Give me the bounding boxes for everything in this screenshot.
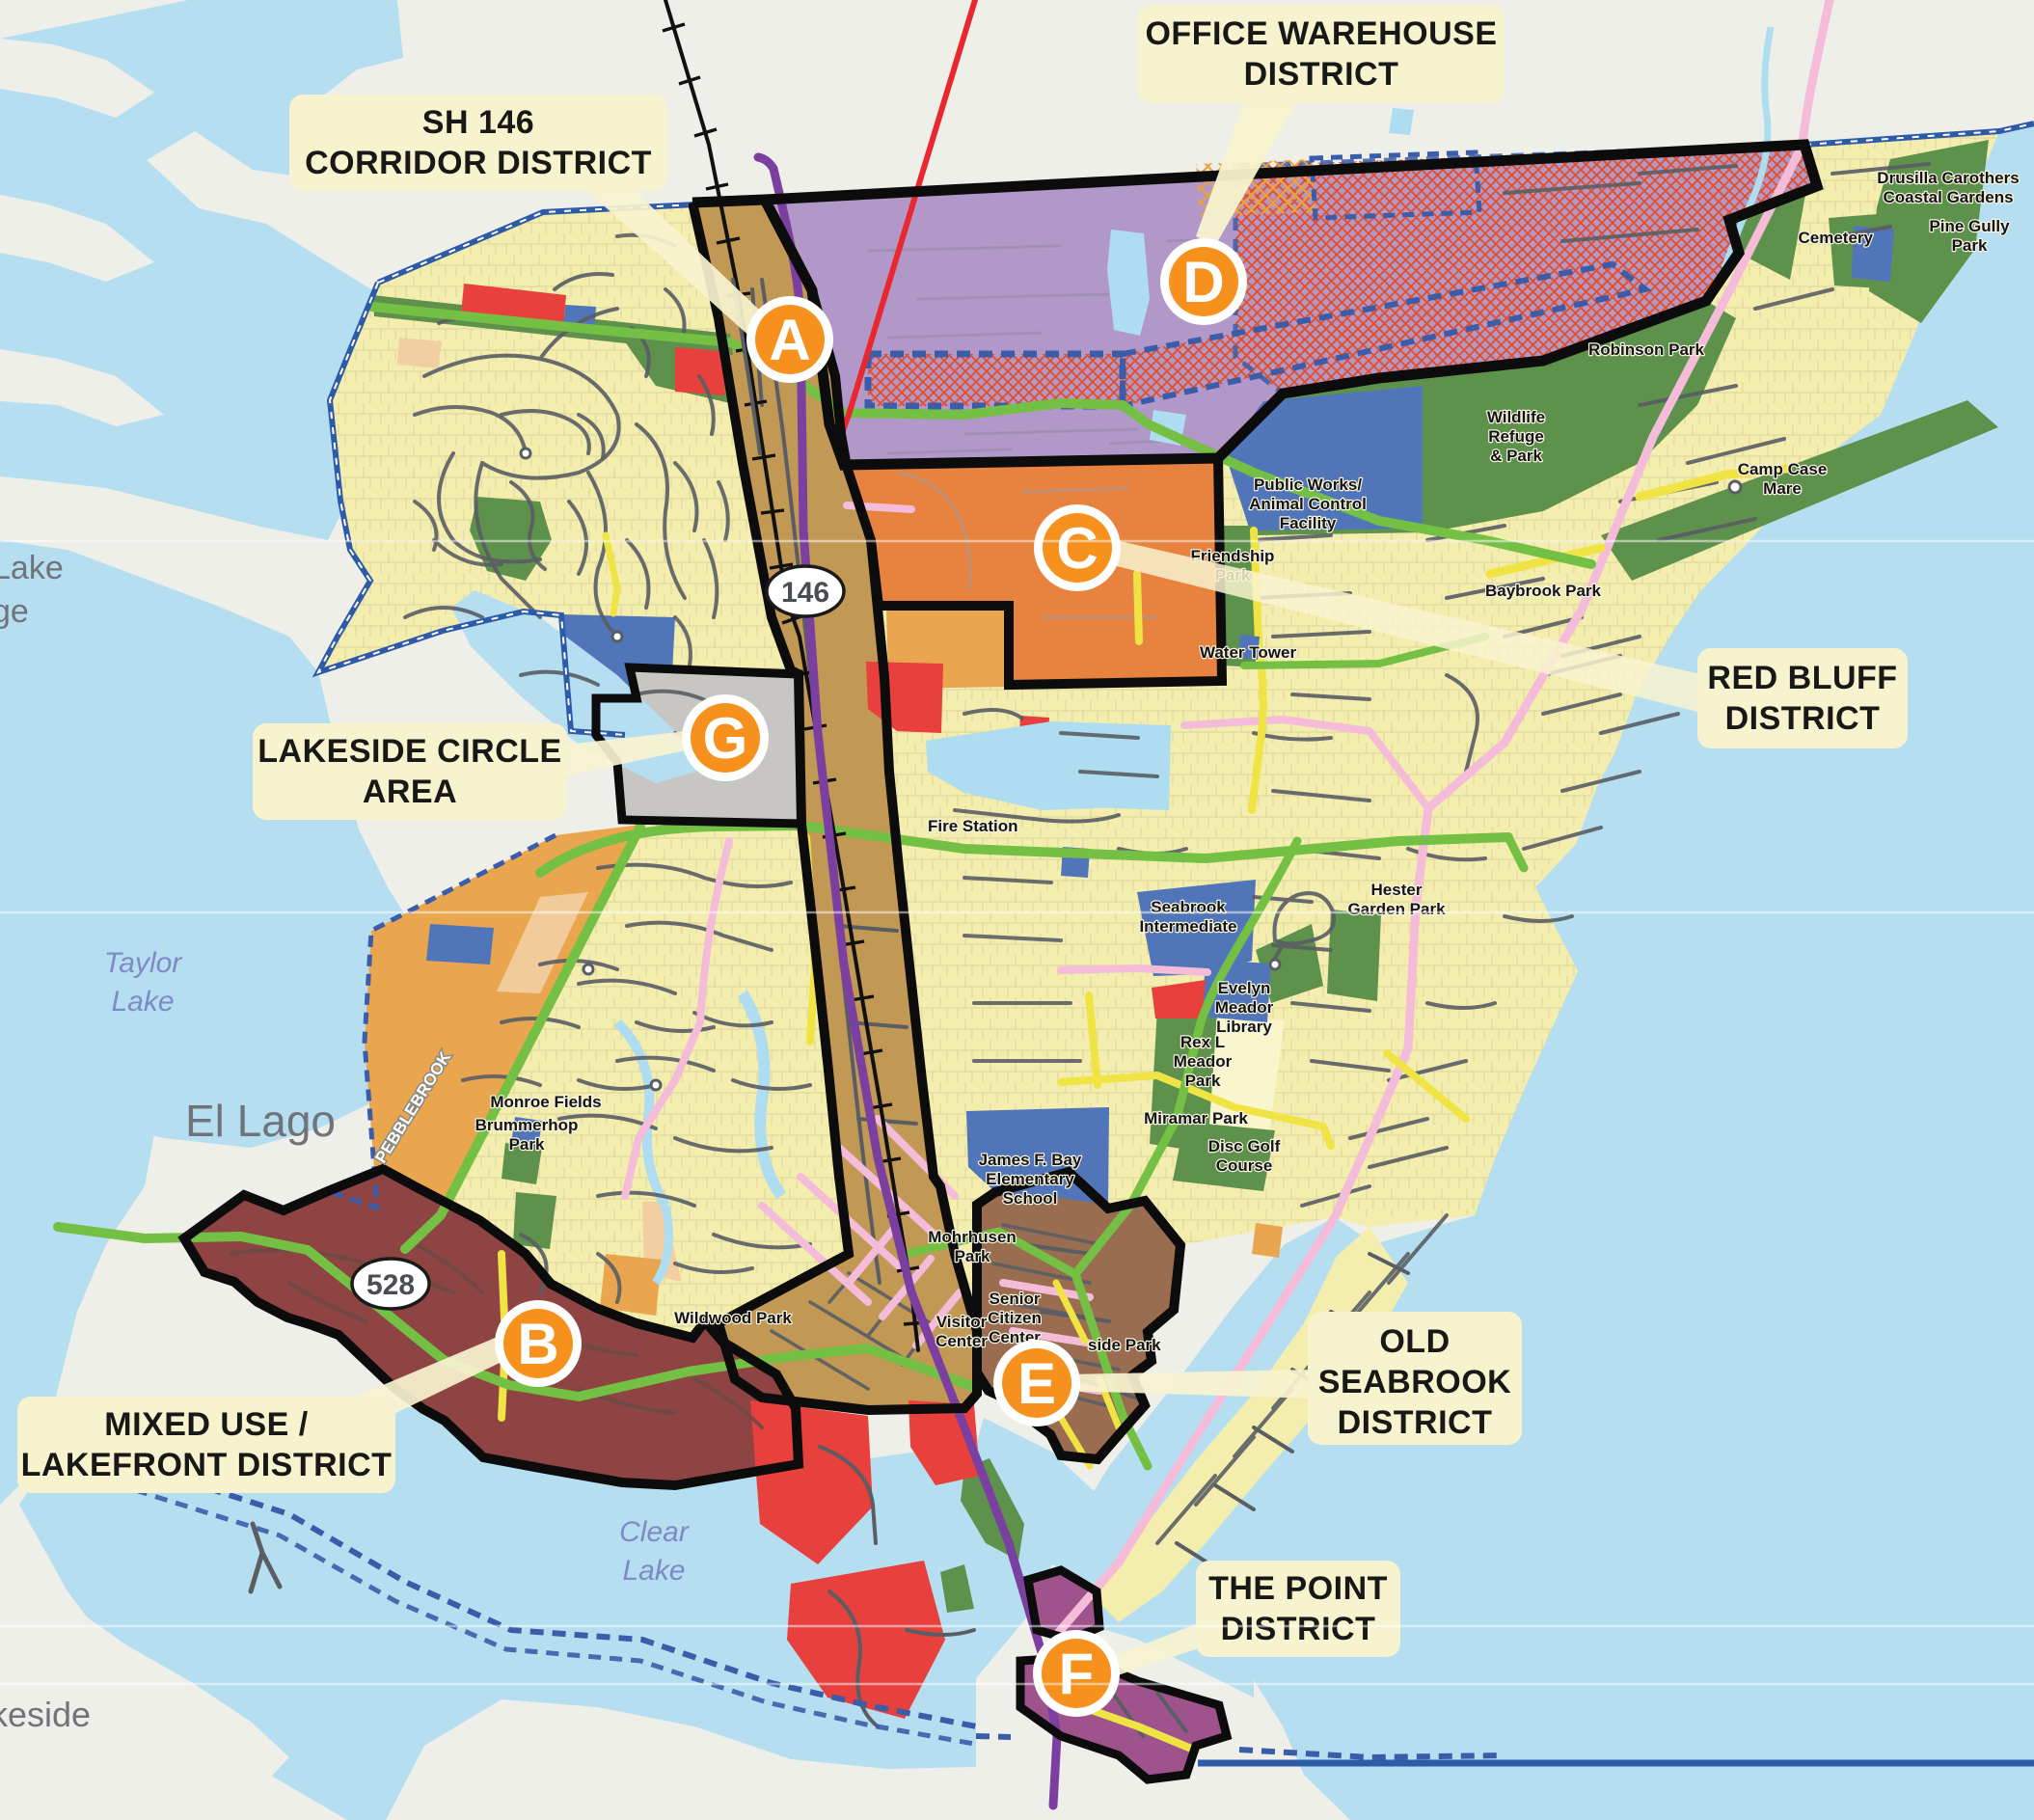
- svg-text:DISTRICT: DISTRICT: [1725, 700, 1881, 737]
- svg-text:Park: Park: [1185, 1072, 1221, 1090]
- svg-text:F: F: [1059, 1642, 1095, 1706]
- svg-text:Center: Center: [936, 1332, 988, 1350]
- svg-text:SEABROOK: SEABROOK: [1318, 1364, 1511, 1400]
- svg-text:CORRIDOR DISTRICT: CORRIDOR DISTRICT: [305, 145, 652, 181]
- svg-text:MIXED USE /: MIXED USE /: [104, 1406, 308, 1443]
- svg-text:El Lago: El Lago: [185, 1096, 336, 1146]
- svg-text:C: C: [1056, 516, 1098, 581]
- svg-text:OLD: OLD: [1379, 1323, 1450, 1360]
- svg-text:Public Works/: Public Works/: [1254, 475, 1362, 494]
- svg-text:Mohrhusen: Mohrhusen: [928, 1228, 1017, 1246]
- svg-text:AREA: AREA: [363, 774, 457, 810]
- svg-text:Monroe Fields: Monroe Fields: [490, 1093, 601, 1111]
- svg-text:ge: ge: [0, 593, 29, 630]
- svg-text:Meador: Meador: [1174, 1052, 1233, 1071]
- svg-text:Senior: Senior: [990, 1290, 1041, 1308]
- svg-text:SH 146: SH 146: [422, 104, 534, 141]
- svg-text:DISTRICT: DISTRICT: [1244, 56, 1399, 93]
- svg-text:Water Tower: Water Tower: [1200, 643, 1297, 662]
- svg-text:Elementary: Elementary: [986, 1170, 1074, 1188]
- svg-text:Visitor: Visitor: [936, 1313, 988, 1331]
- svg-text:Cemetery: Cemetery: [1799, 229, 1874, 247]
- svg-text:E: E: [1017, 1351, 1056, 1416]
- svg-text:DISTRICT: DISTRICT: [1338, 1404, 1493, 1441]
- svg-text:RED BLUFF: RED BLUFF: [1707, 660, 1897, 696]
- svg-text:Brummerhop: Brummerhop: [475, 1116, 579, 1134]
- svg-text:Park: Park: [509, 1135, 545, 1154]
- svg-text:OFFICE WAREHOUSE: OFFICE WAREHOUSE: [1145, 15, 1497, 52]
- svg-text:James F. Bay: James F. Bay: [979, 1151, 1082, 1169]
- svg-text:Miramar Park: Miramar Park: [1144, 1109, 1248, 1127]
- svg-text:G: G: [703, 706, 748, 771]
- svg-text:Meador: Meador: [1215, 998, 1274, 1017]
- svg-text:Park: Park: [955, 1247, 990, 1265]
- svg-text:Baybrook Park: Baybrook Park: [1485, 582, 1602, 600]
- svg-text:Lake: Lake: [0, 550, 64, 586]
- svg-text:Rex L: Rex L: [1180, 1033, 1225, 1051]
- svg-text:Lake: Lake: [622, 1555, 685, 1587]
- svg-text:Animal Control: Animal Control: [1249, 495, 1367, 513]
- svg-text:Refuge: Refuge: [1488, 427, 1544, 446]
- svg-text:Facility: Facility: [1280, 514, 1337, 532]
- svg-text:Garden Park: Garden Park: [1347, 900, 1446, 918]
- svg-text:Wildlife: Wildlife: [1487, 408, 1545, 426]
- svg-text:& Park: & Park: [1490, 447, 1542, 465]
- svg-text:Wildwood Park: Wildwood Park: [674, 1309, 792, 1327]
- svg-text:Taylor: Taylor: [104, 947, 183, 979]
- svg-text:Camp Case: Camp Case: [1738, 460, 1828, 478]
- svg-text:Robinson Park: Robinson Park: [1588, 340, 1705, 359]
- svg-text:Disc Golf: Disc Golf: [1208, 1137, 1281, 1155]
- svg-text:LAKESIDE CIRCLE: LAKESIDE CIRCLE: [258, 733, 561, 770]
- svg-text:DISTRICT: DISTRICT: [1221, 1611, 1376, 1647]
- svg-text:528: 528: [366, 1269, 415, 1301]
- svg-text:side Park: side Park: [1088, 1336, 1161, 1354]
- svg-text:Hester: Hester: [1371, 881, 1423, 899]
- svg-text:146: 146: [781, 577, 829, 609]
- svg-text:Pine Gully: Pine Gully: [1929, 217, 2010, 235]
- svg-text:Mare: Mare: [1763, 479, 1802, 498]
- svg-text:A: A: [769, 308, 810, 372]
- svg-text:Citizen: Citizen: [988, 1309, 1042, 1327]
- svg-text:Lake: Lake: [111, 986, 174, 1018]
- svg-text:Evelyn: Evelyn: [1218, 979, 1271, 997]
- svg-text:LAKEFRONT DISTRICT: LAKEFRONT DISTRICT: [21, 1447, 393, 1483]
- svg-text:Park: Park: [1952, 236, 1988, 255]
- svg-text:School: School: [1003, 1189, 1058, 1208]
- svg-text:Coastal Gardens: Coastal Gardens: [1883, 188, 2013, 206]
- svg-text:keside: keside: [0, 1695, 91, 1734]
- svg-text:B: B: [517, 1312, 558, 1376]
- svg-text:Drusilla Carothers: Drusilla Carothers: [1877, 169, 2019, 187]
- svg-text:Clear: Clear: [619, 1516, 690, 1548]
- svg-text:Fire Station: Fire Station: [928, 817, 1018, 835]
- svg-text:THE POINT: THE POINT: [1208, 1570, 1388, 1607]
- svg-text:Course: Course: [1216, 1156, 1273, 1175]
- svg-text:D: D: [1182, 250, 1224, 314]
- svg-text:Intermediate: Intermediate: [1139, 917, 1236, 936]
